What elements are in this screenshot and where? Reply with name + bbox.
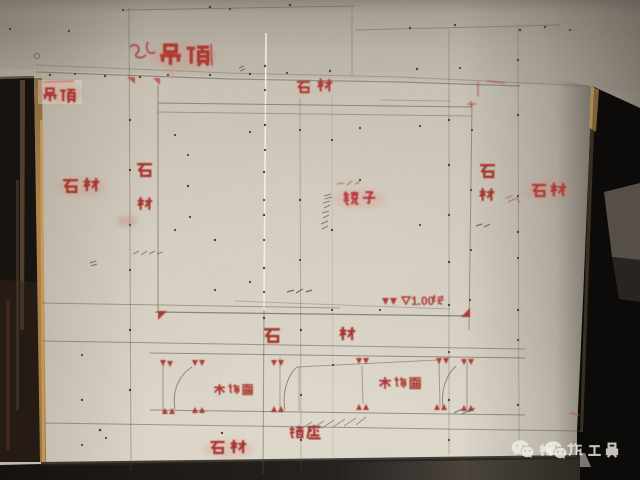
svg-text:1.00: 1.00	[411, 294, 435, 308]
